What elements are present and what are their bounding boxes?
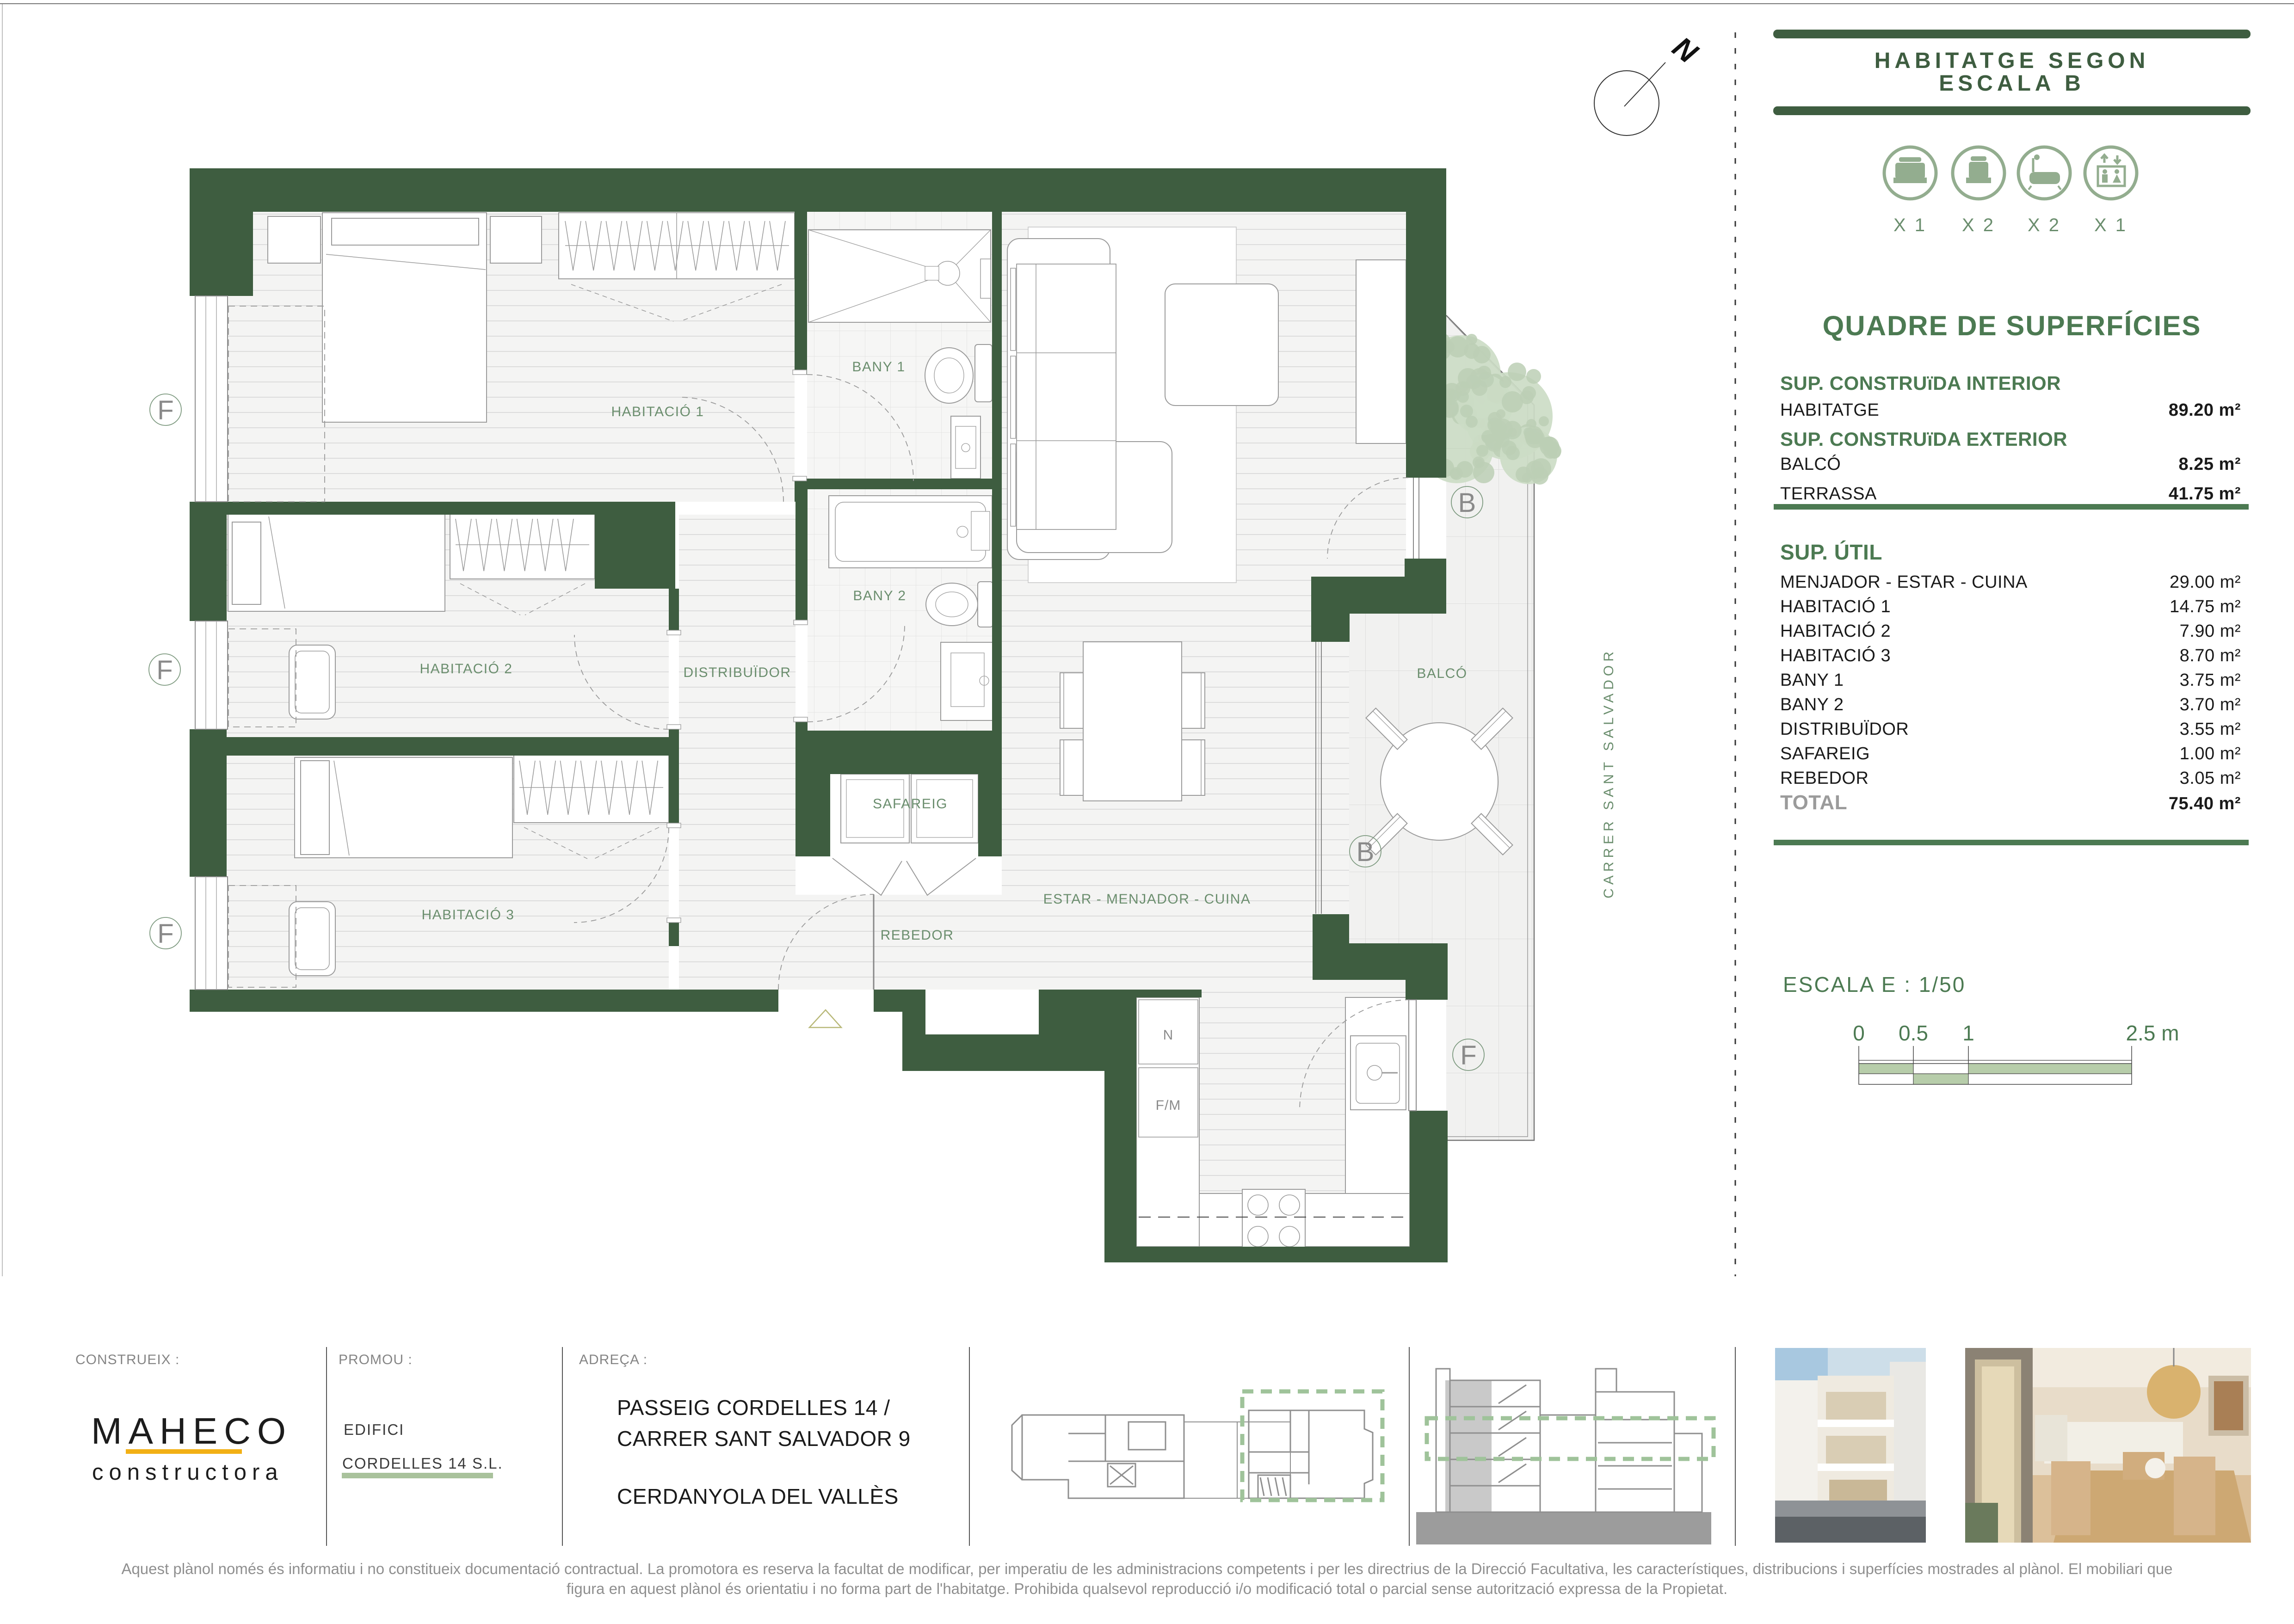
svg-text:ESCALA E : 1/50: ESCALA E : 1/50 <box>1783 972 1966 997</box>
svg-text:89.20 m²: 89.20 m² <box>2169 400 2241 420</box>
svg-text:HABITACIÓ 2: HABITACIÓ 2 <box>1780 621 1891 641</box>
svg-text:F: F <box>157 919 173 949</box>
svg-text:3.05 m²: 3.05 m² <box>2180 769 2241 788</box>
svg-text:CONSTRUEIX :: CONSTRUEIX : <box>75 1352 179 1367</box>
svg-text:2.5 m: 2.5 m <box>2126 1021 2179 1045</box>
svg-text:HABITACIÓ 1: HABITACIÓ 1 <box>611 404 704 419</box>
svg-text:1: 1 <box>1962 1021 1974 1045</box>
svg-text:figura en aquest plànol és ori: figura en aquest plànol és orientatiu i … <box>567 1580 1727 1597</box>
svg-text:HABITATGE SEGON: HABITATGE SEGON <box>1875 49 2150 73</box>
svg-text:X 2: X 2 <box>2028 215 2061 235</box>
svg-text:BALCÓ: BALCÓ <box>1780 454 1841 474</box>
svg-text:CERDANYOLA DEL VALLÈS: CERDANYOLA DEL VALLÈS <box>617 1484 899 1508</box>
svg-text:SUP. CONSTRUïDA EXTERIOR: SUP. CONSTRUïDA EXTERIOR <box>1780 428 2067 450</box>
svg-text:BALCÓ: BALCÓ <box>1417 666 1467 681</box>
svg-text:1.00 m²: 1.00 m² <box>2180 744 2241 763</box>
svg-text:PROMOU :: PROMOU : <box>339 1352 413 1367</box>
svg-text:CARRER SANT SALVADOR 9: CARRER SANT SALVADOR 9 <box>617 1427 911 1451</box>
svg-text:CARRER SANT SALVADOR: CARRER SANT SALVADOR <box>1601 648 1616 898</box>
svg-text:HABITACIÓ 3: HABITACIÓ 3 <box>1780 646 1891 665</box>
svg-text:B: B <box>1458 488 1476 518</box>
svg-text:CORDELLES 14 S.L.: CORDELLES 14 S.L. <box>342 1455 503 1472</box>
svg-text:HABITACIÓ 2: HABITACIÓ 2 <box>420 661 513 677</box>
svg-text:TERRASSA: TERRASSA <box>1780 484 1877 504</box>
svg-text:3.75 m²: 3.75 m² <box>2180 671 2241 690</box>
svg-text:X 2: X 2 <box>1962 215 1995 235</box>
svg-text:SUP. CONSTRUïDA INTERIOR: SUP. CONSTRUïDA INTERIOR <box>1780 372 2061 394</box>
svg-text:DISTRIBUÏDOR: DISTRIBUÏDOR <box>683 665 791 680</box>
svg-text:BANY 2: BANY 2 <box>853 588 906 603</box>
svg-text:7.90 m²: 7.90 m² <box>2180 621 2241 641</box>
svg-text:F/M: F/M <box>1156 1098 1181 1113</box>
svg-text:TOTAL: TOTAL <box>1780 791 1847 814</box>
svg-text:0: 0 <box>1853 1021 1865 1045</box>
svg-text:EDIFICI: EDIFICI <box>344 1421 404 1438</box>
svg-text:SUP. ÚTIL: SUP. ÚTIL <box>1780 540 1882 564</box>
svg-text:X 1: X 1 <box>2094 215 2127 235</box>
svg-text:HABITACIÓ 1: HABITACIÓ 1 <box>1780 597 1891 616</box>
svg-text:SAFAREIG: SAFAREIG <box>873 796 948 812</box>
svg-text:N: N <box>1163 1027 1174 1043</box>
svg-text:3.70 m²: 3.70 m² <box>2180 695 2241 714</box>
svg-text:0.5: 0.5 <box>1899 1021 1928 1045</box>
svg-text:ESCALA B: ESCALA B <box>1939 71 2085 96</box>
svg-text:8.70 m²: 8.70 m² <box>2180 646 2241 665</box>
svg-text:14.75 m²: 14.75 m² <box>2170 597 2241 616</box>
svg-text:X 1: X 1 <box>1893 215 1927 235</box>
svg-text:75.40 m²: 75.40 m² <box>2169 794 2241 813</box>
svg-text:ADREÇA :: ADREÇA : <box>579 1352 647 1367</box>
svg-text:DISTRIBUÏDOR: DISTRIBUÏDOR <box>1780 720 1909 739</box>
svg-text:REBEDOR: REBEDOR <box>881 928 954 943</box>
svg-text:MAHECO: MAHECO <box>91 1410 292 1452</box>
svg-text:8.25 m²: 8.25 m² <box>2179 455 2241 474</box>
svg-text:Aquest plànol només és informa: Aquest plànol només és informatiu i no c… <box>121 1560 2172 1577</box>
svg-text:HABITATGE: HABITATGE <box>1780 400 1879 420</box>
svg-text:PASSEIG CORDELLES 14 /: PASSEIG CORDELLES 14 / <box>617 1396 890 1420</box>
svg-text:ESTAR - MENJADOR - CUINA: ESTAR - MENJADOR - CUINA <box>1043 892 1251 907</box>
svg-text:B: B <box>1357 837 1375 867</box>
svg-text:REBEDOR: REBEDOR <box>1780 769 1868 788</box>
svg-text:F: F <box>156 655 173 685</box>
svg-text:F: F <box>1460 1040 1476 1070</box>
svg-text:41.75 m²: 41.75 m² <box>2169 484 2241 504</box>
svg-text:QUADRE DE SUPERFÍCIES: QUADRE DE SUPERFÍCIES <box>1823 310 2201 341</box>
svg-text:HABITACIÓ 3: HABITACIÓ 3 <box>422 907 515 923</box>
svg-text:BANY 1: BANY 1 <box>852 359 905 375</box>
svg-text:29.00 m²: 29.00 m² <box>2170 572 2241 592</box>
svg-text:BANY 1: BANY 1 <box>1780 671 1844 690</box>
svg-text:SAFAREIG: SAFAREIG <box>1780 744 1870 763</box>
svg-text:3.55 m²: 3.55 m² <box>2180 720 2241 739</box>
svg-text:MENJADOR - ESTAR - CUINA: MENJADOR - ESTAR - CUINA <box>1780 572 2028 592</box>
svg-text:F: F <box>157 395 173 425</box>
svg-text:constructora: constructora <box>92 1460 284 1485</box>
svg-text:BANY 2: BANY 2 <box>1780 695 1844 714</box>
